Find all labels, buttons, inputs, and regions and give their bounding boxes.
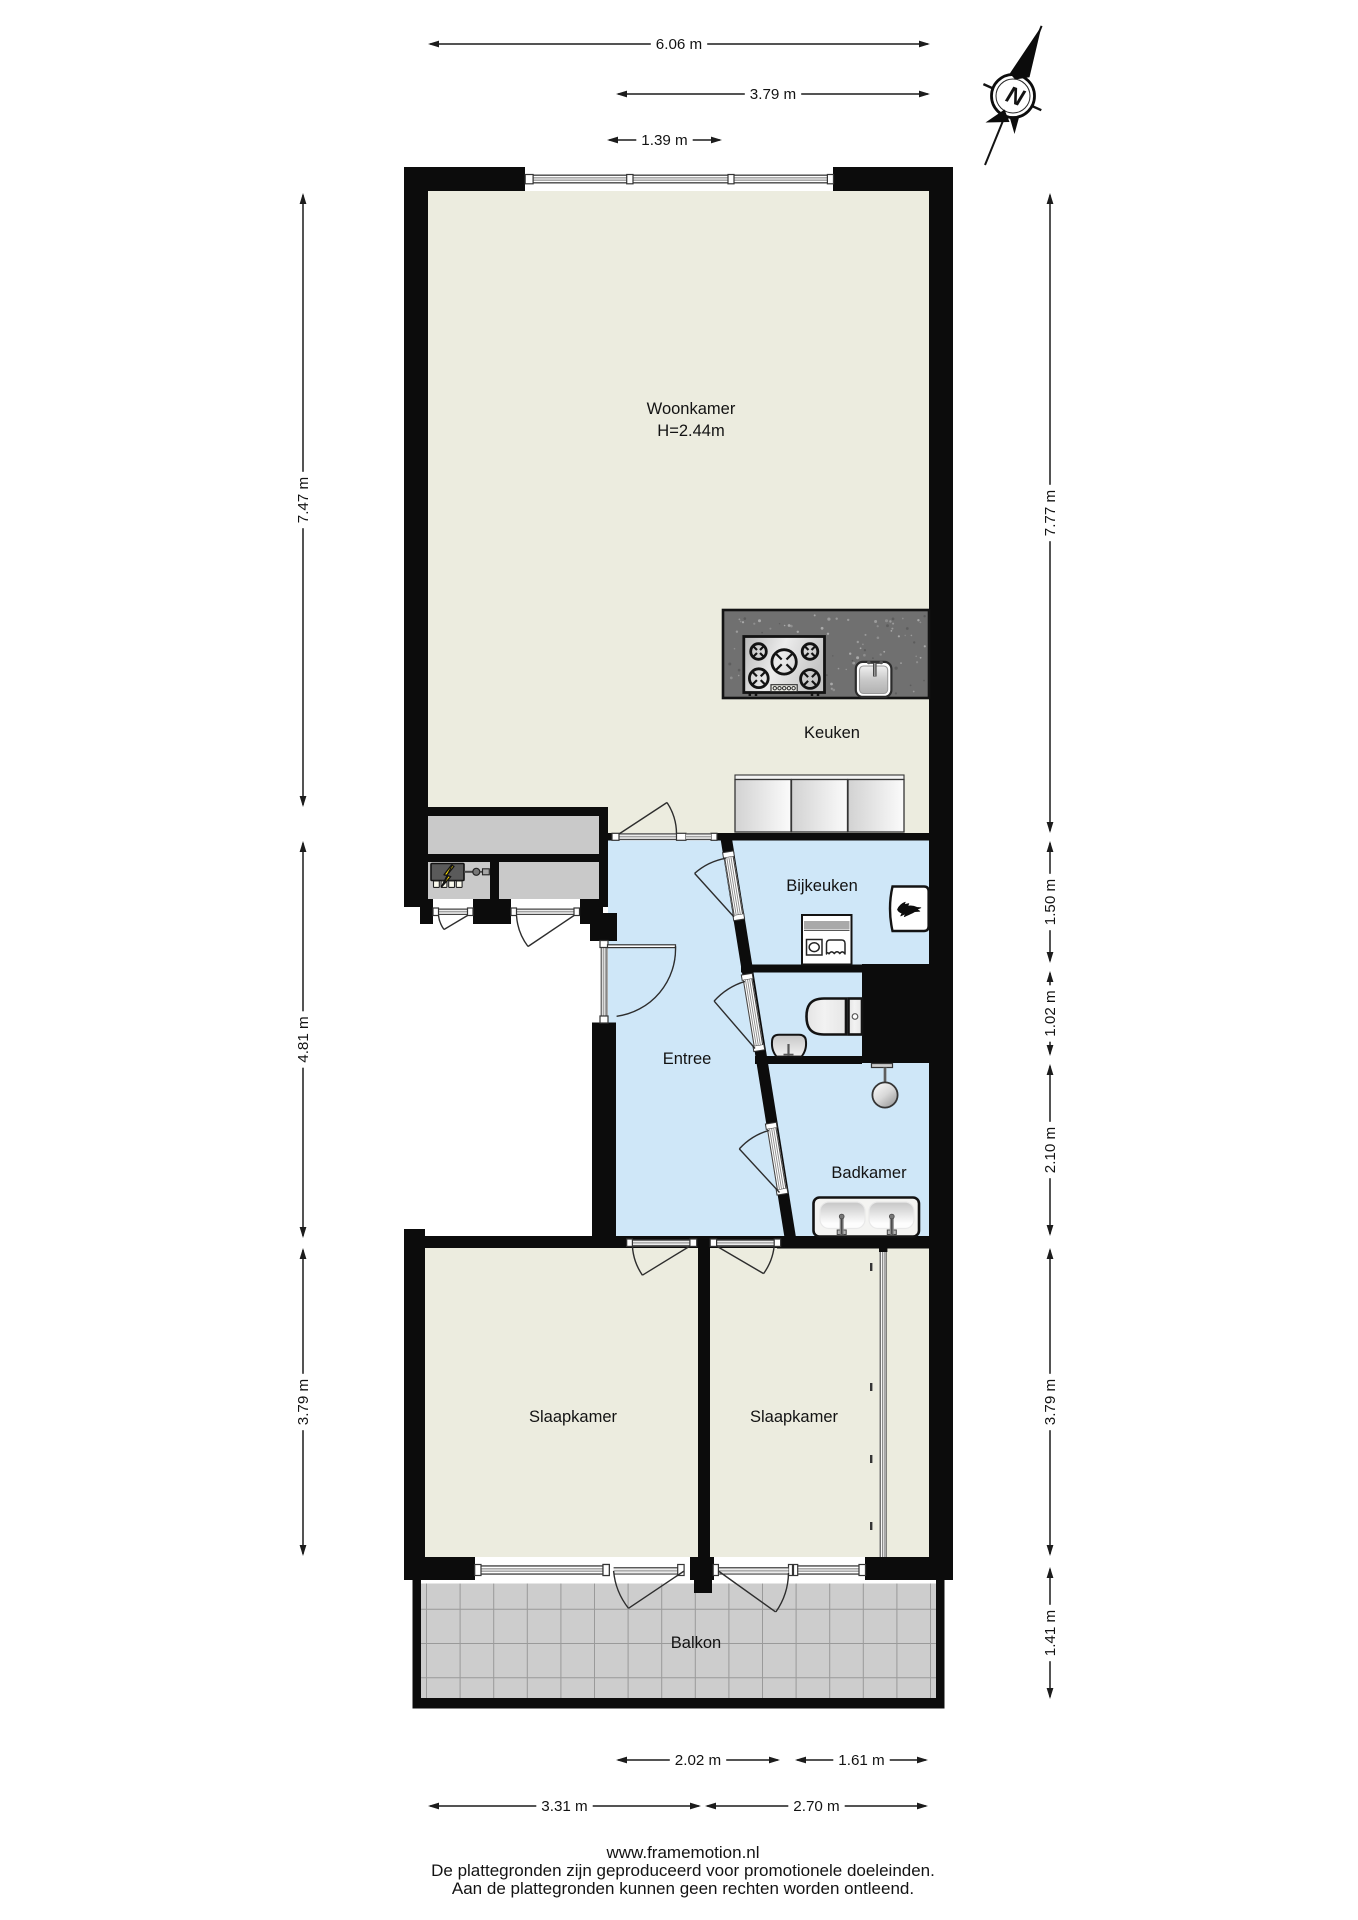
svg-text:Slaapkamer: Slaapkamer — [529, 1408, 618, 1426]
svg-text:1.41 m: 1.41 m — [1042, 1610, 1059, 1656]
svg-text:6.06 m: 6.06 m — [656, 36, 702, 53]
svg-text:www.framemotion.nl: www.framemotion.nl — [605, 1843, 759, 1862]
svg-text:3.79 m: 3.79 m — [750, 86, 796, 103]
svg-text:3.79 m: 3.79 m — [1042, 1379, 1059, 1425]
svg-text:7.47 m: 7.47 m — [295, 477, 312, 523]
svg-text:De plattegronden zijn geproduc: De plattegronden zijn geproduceerd voor … — [431, 1861, 935, 1880]
svg-text:1.02 m: 1.02 m — [1042, 990, 1059, 1036]
svg-text:3.31 m: 3.31 m — [541, 1798, 587, 1815]
svg-text:1.39 m: 1.39 m — [641, 132, 687, 149]
svg-text:Balkon: Balkon — [671, 1634, 721, 1652]
svg-text:H=2.44m: H=2.44m — [657, 422, 724, 440]
svg-text:2.70 m: 2.70 m — [793, 1798, 839, 1815]
svg-text:1.61 m: 1.61 m — [838, 1752, 884, 1769]
svg-text:Keuken: Keuken — [804, 724, 860, 742]
svg-text:2.02 m: 2.02 m — [675, 1752, 721, 1769]
svg-text:Slaapkamer: Slaapkamer — [750, 1408, 839, 1426]
svg-text:1.50 m: 1.50 m — [1042, 879, 1059, 925]
svg-text:7.77 m: 7.77 m — [1042, 490, 1059, 536]
svg-text:Woonkamer: Woonkamer — [647, 400, 736, 418]
svg-text:4.81 m: 4.81 m — [295, 1016, 312, 1062]
svg-text:3.79 m: 3.79 m — [295, 1379, 312, 1425]
svg-text:Aan de plattegronden kunnen ge: Aan de plattegronden kunnen geen rechten… — [452, 1879, 914, 1898]
svg-text:Entree: Entree — [663, 1050, 712, 1068]
svg-text:Badkamer: Badkamer — [831, 1164, 907, 1182]
svg-text:2.10 m: 2.10 m — [1042, 1127, 1059, 1173]
svg-text:Bijkeuken: Bijkeuken — [786, 877, 858, 895]
